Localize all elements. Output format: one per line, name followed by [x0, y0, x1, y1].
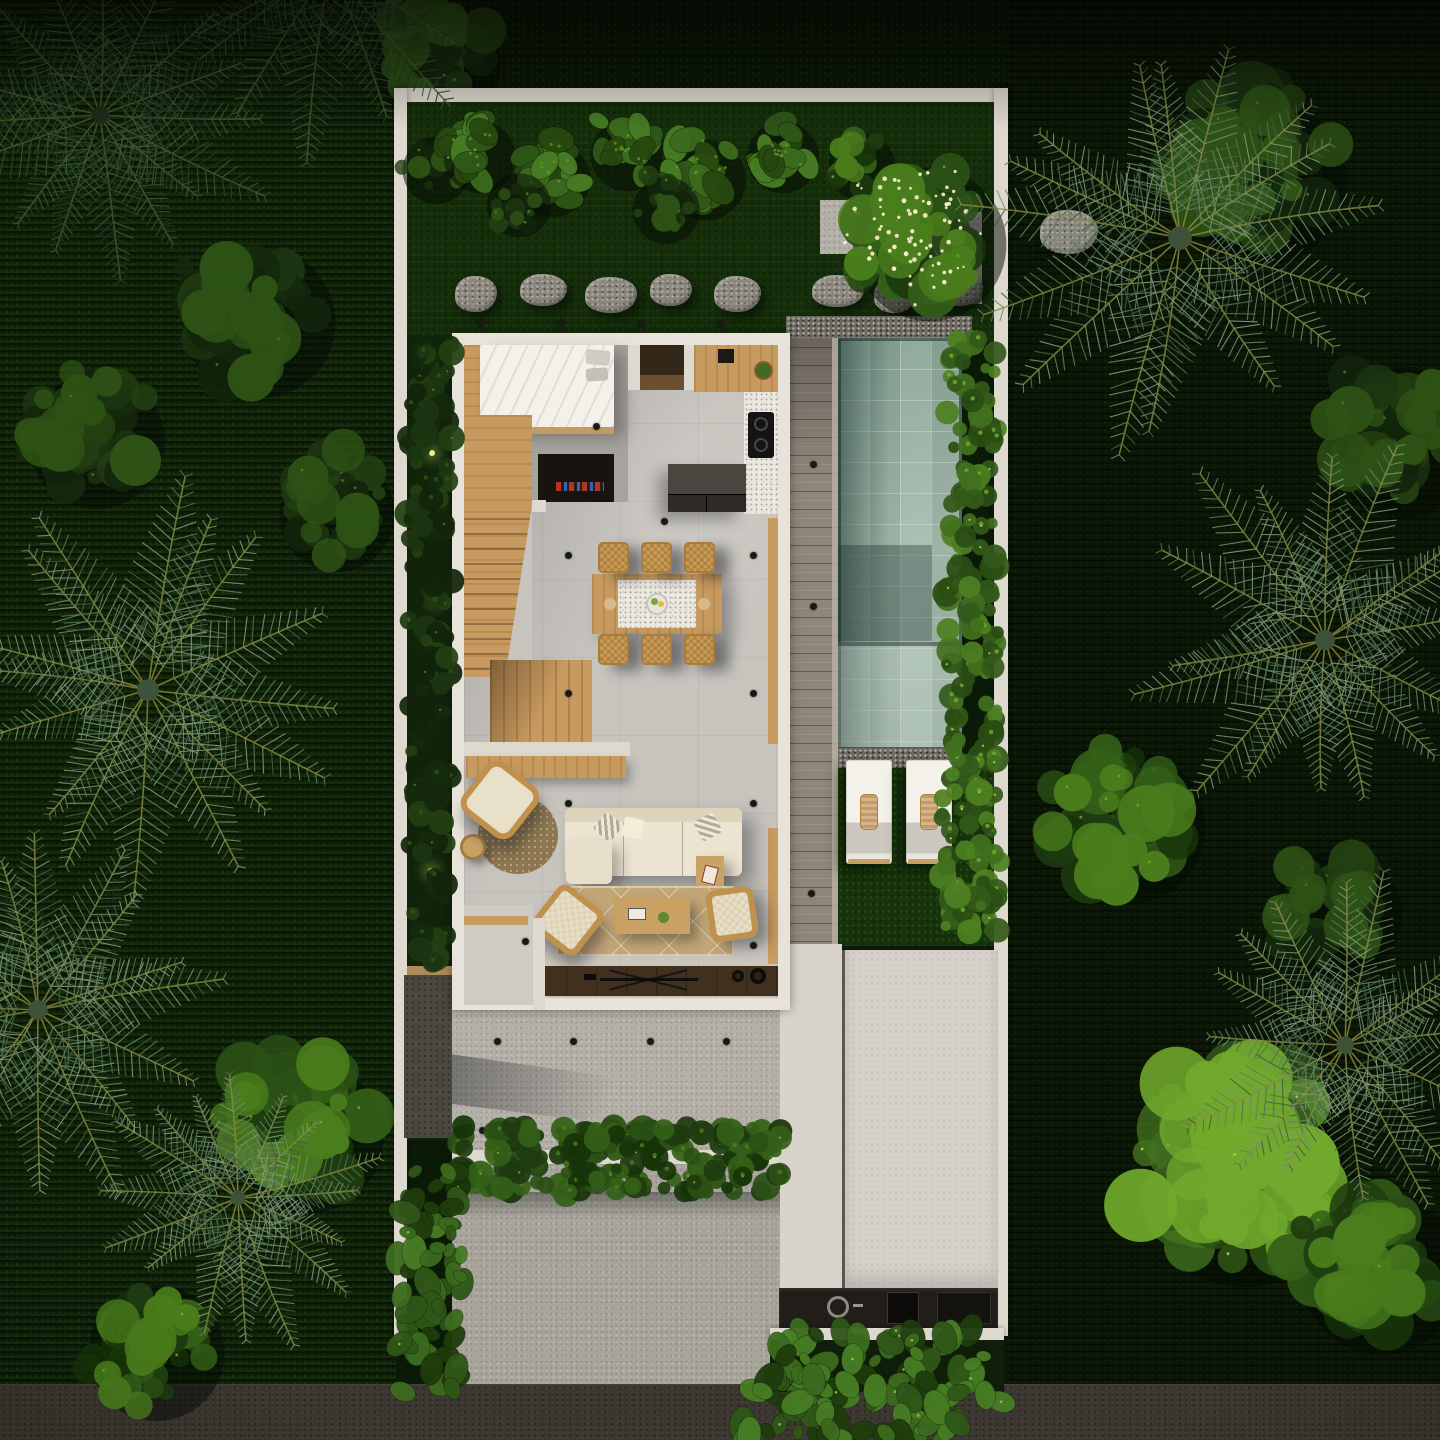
deck-recessed-light	[810, 603, 817, 610]
terrace-recessed-light	[479, 1127, 486, 1134]
terrace	[452, 1010, 790, 1150]
rolled-towel	[860, 794, 878, 830]
terrace-recessed-light	[570, 1038, 577, 1045]
ceiling-spotlight	[750, 800, 757, 807]
lounger-legs	[908, 859, 950, 864]
terrace-recessed-light	[494, 1038, 501, 1045]
bedroom-wall-east	[628, 345, 640, 390]
garden-recessed-light	[477, 320, 484, 327]
planter-cap	[770, 1328, 1004, 1340]
kitchen-cabinets	[694, 345, 778, 392]
dining-chair	[684, 634, 715, 665]
stepping-stone	[650, 274, 692, 306]
porch-wall	[533, 918, 545, 1010]
outdoor-cabinet	[937, 1292, 991, 1324]
terrace-recessed-light	[712, 1127, 719, 1134]
sliding-door-sill	[768, 828, 778, 964]
deck-recessed-light	[808, 890, 815, 897]
ceiling-spotlight	[750, 552, 757, 559]
driveway	[452, 1164, 780, 1384]
ceiling-spotlight	[565, 690, 572, 697]
burner	[754, 438, 768, 452]
side-passage-stone-pad	[404, 975, 452, 1138]
table-plant	[658, 912, 669, 923]
ceiling-spotlight	[750, 942, 757, 949]
staircase-upper-flight	[464, 415, 532, 677]
terrace-recessed-light	[556, 1127, 563, 1134]
stepping-stone	[455, 276, 497, 312]
dining-chair	[641, 542, 672, 573]
lawn-left-outside	[0, 0, 396, 1390]
garden-uplight	[432, 596, 438, 602]
closet-wall-east	[684, 345, 694, 390]
book-stack	[628, 908, 646, 920]
terrace-recessed-light	[634, 1127, 641, 1134]
island-seam	[706, 494, 707, 512]
sliding-door-sill	[768, 518, 778, 744]
outdoor-grill	[887, 1292, 919, 1324]
cooktop	[748, 412, 774, 458]
ceiling-spotlight	[593, 423, 600, 430]
place-plate	[604, 598, 616, 610]
kitchen-appliance	[718, 349, 734, 363]
sofa-chaise	[566, 840, 612, 884]
wardrobe	[640, 345, 684, 390]
vase	[750, 968, 766, 984]
fruit	[658, 601, 664, 607]
pool-deep-shadow	[838, 545, 932, 641]
lawn-right-outside	[1006, 0, 1440, 1390]
stepping-stone	[520, 274, 567, 306]
burner	[754, 417, 768, 431]
dining-table	[592, 574, 722, 634]
stepping-stone	[585, 277, 637, 313]
garden-pad	[820, 200, 874, 254]
kitchen-island	[668, 464, 746, 512]
armchair	[705, 885, 760, 943]
stair-wall-south	[464, 742, 630, 756]
garden-uplight	[428, 868, 434, 874]
garden-recessed-light	[557, 320, 564, 327]
tv-screen-edge	[600, 978, 698, 981]
kitchen-plant	[756, 363, 771, 378]
outdoor-sink	[827, 1296, 849, 1318]
sun-lounger	[846, 760, 892, 864]
ceiling-spotlight	[565, 552, 572, 559]
magazine	[701, 865, 719, 886]
place-plate	[698, 598, 710, 610]
sun-lounger	[906, 760, 952, 864]
boundary-wall-left	[394, 88, 407, 1340]
round-side-table	[460, 834, 486, 860]
bedroom-desk	[538, 454, 614, 502]
porch-step	[464, 916, 528, 925]
outdoor-faucet	[853, 1304, 863, 1307]
stepping-stone	[812, 275, 864, 307]
stepping-stone	[936, 274, 983, 306]
bed-pillow	[585, 349, 610, 366]
garden-recessed-light	[637, 320, 644, 327]
stepping-stone	[714, 276, 761, 312]
garden-recessed-light	[717, 320, 724, 327]
wardrobe-front	[640, 375, 684, 390]
garage-roof-pad	[842, 950, 998, 1288]
tv-console	[536, 966, 778, 996]
hedge-wall-cap	[452, 1150, 782, 1164]
remote-control	[584, 974, 596, 980]
terrace-recessed-light	[647, 1038, 654, 1045]
dining-chair	[641, 634, 672, 665]
staircase-lower-flight	[490, 660, 592, 744]
sofa-seam	[682, 822, 683, 876]
rolled-towel	[920, 794, 938, 830]
boundary-wall-top	[394, 88, 1008, 102]
dining-chair	[598, 542, 629, 573]
stepping-stone	[874, 277, 916, 313]
island-cabinets	[668, 494, 746, 512]
terrace-tree-shadow	[452, 1040, 662, 1120]
pool-deck	[786, 338, 838, 944]
bed-pillow	[586, 367, 609, 382]
dining-chair	[598, 634, 629, 665]
coffee-table	[614, 898, 690, 934]
planter-bed	[770, 1340, 1004, 1392]
ceiling-spotlight	[565, 800, 572, 807]
garden-uplight	[429, 450, 435, 456]
street	[0, 1384, 1440, 1440]
lounger-legs	[848, 859, 890, 864]
desk-books	[556, 482, 604, 491]
terrace-recessed-light	[723, 1038, 730, 1045]
dining-chair	[684, 542, 715, 573]
outdoor-kitchen-counter	[779, 1288, 998, 1328]
hedge-shadow	[452, 1192, 780, 1218]
vase	[732, 970, 744, 982]
fruit	[651, 598, 658, 605]
villa-aerial-floor-plan-render	[0, 0, 1440, 1440]
ceiling-spotlight	[522, 938, 529, 945]
passage-bench	[407, 966, 452, 975]
fruit-bowl	[646, 593, 668, 615]
ceiling-spotlight	[661, 518, 668, 525]
chair-cushion	[469, 769, 531, 831]
ceiling-spotlight	[750, 690, 757, 697]
throw-pillow	[621, 816, 645, 840]
terrace-drain	[460, 1124, 473, 1137]
deck-recessed-light	[810, 461, 817, 468]
pool-shallow-shelf	[838, 642, 962, 750]
stepping-stone	[1040, 210, 1098, 254]
pool-gravel-top	[786, 316, 972, 338]
